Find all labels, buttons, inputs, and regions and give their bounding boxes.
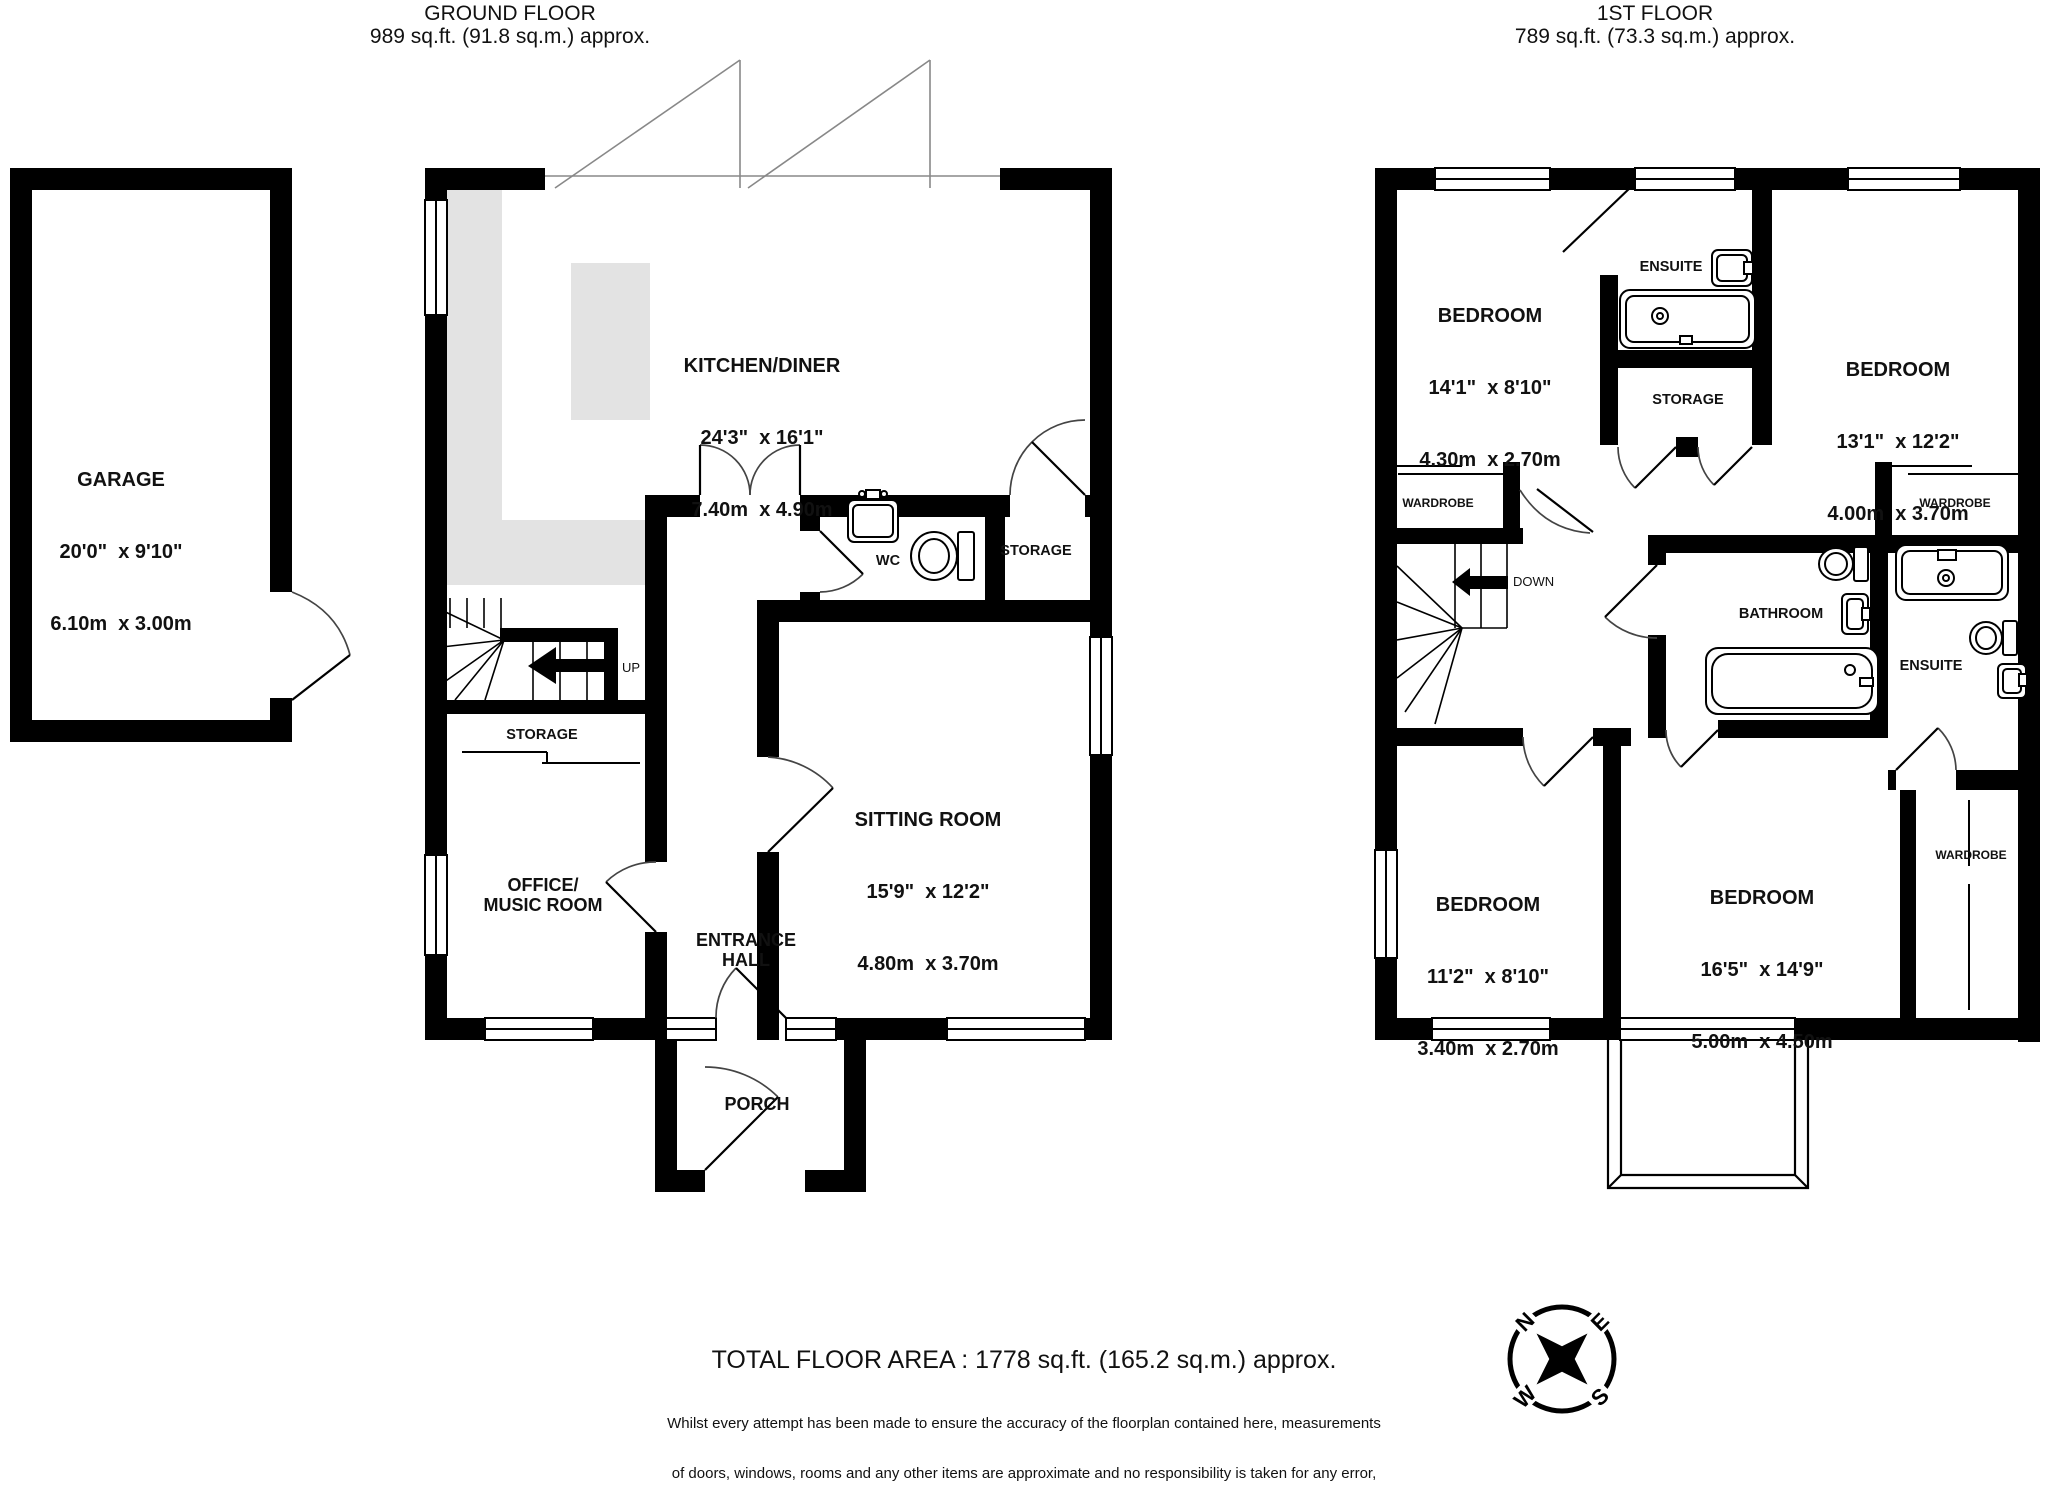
room-dims-metric: 4.30m x 2.70m bbox=[1419, 448, 1560, 472]
up-arrow-icon bbox=[528, 647, 612, 684]
wardrobe-1-label: WARDROBE bbox=[1402, 496, 1473, 510]
ensuite-2-label: ENSUITE bbox=[1900, 658, 1963, 674]
room-dims-imperial: 13'1" x 12'2" bbox=[1827, 430, 1968, 454]
floorplan-canvas: N E S W GROUND FLOOR989 sq.ft. (91.8 sq.… bbox=[0, 0, 2048, 1488]
stairs-down bbox=[1397, 544, 1507, 724]
ensuite-1-label: ENSUITE bbox=[1640, 259, 1703, 275]
compass-e: E bbox=[1586, 1308, 1614, 1336]
room-dims-imperial: 24'3" x 16'1" bbox=[684, 426, 841, 450]
room-dims-metric: 7.40m x 4.90m bbox=[684, 498, 841, 522]
wc-label: WC bbox=[876, 553, 900, 569]
first-floor-title: 1ST FLOOR789 sq.ft. (73.3 sq.m.) approx. bbox=[1515, 2, 1795, 48]
bath-icon bbox=[1706, 648, 1878, 714]
room-dims-metric: 5.00m x 4.50m bbox=[1691, 1030, 1832, 1054]
room-dims-metric: 6.10m x 3.00m bbox=[50, 612, 191, 636]
bedroom-3-label: BEDROOM 11'2" x 8'10" 3.40m x 2.70m bbox=[1417, 845, 1558, 1085]
room-name: BEDROOM bbox=[1419, 304, 1560, 328]
storage-ff-label: STORAGE bbox=[1652, 392, 1723, 408]
bedroom-1-label: BEDROOM 14'1" x 8'10" 4.30m x 2.70m bbox=[1419, 256, 1560, 496]
entrance-hall-label: ENTRANCE HALL bbox=[696, 930, 796, 970]
disclaimer-line: Whilst every attempt has been made to en… bbox=[663, 1416, 1385, 1433]
stairs-up bbox=[433, 598, 587, 700]
room-dims-metric: 3.40m x 2.70m bbox=[1417, 1037, 1558, 1061]
stairs-up-label: UP bbox=[622, 660, 640, 675]
bifold-door-marks bbox=[545, 60, 1000, 188]
garage-label: GARAGE 20'0" x 9'10" 6.10m x 3.00m bbox=[50, 420, 191, 660]
room-name: BEDROOM bbox=[1691, 886, 1832, 910]
floorplan-drawing: N E S W bbox=[0, 0, 2048, 1488]
bedroom-4-label: BEDROOM 16'5" x 14'9" 5.00m x 4.50m bbox=[1691, 838, 1832, 1078]
ground-floor-name: GROUND FLOOR bbox=[370, 2, 650, 25]
room-dims-imperial: 14'1" x 8'10" bbox=[1419, 376, 1560, 400]
ensuite1-sink-icon bbox=[1712, 250, 1753, 286]
ensuite2-toilet-icon bbox=[1970, 621, 2017, 655]
kitchen-counters bbox=[447, 190, 655, 585]
wardrobe-3-label: WARDROBE bbox=[1935, 848, 2006, 862]
ground-floor-title: GROUND FLOOR989 sq.ft. (91.8 sq.m.) appr… bbox=[370, 2, 650, 48]
compass-rose: N E S W bbox=[1471, 1268, 1654, 1451]
room-dims-imperial: 11'2" x 8'10" bbox=[1417, 965, 1558, 989]
first-floor-area: 789 sq.ft. (73.3 sq.m.) approx. bbox=[1515, 25, 1795, 48]
first-floor-name: 1ST FLOOR bbox=[1515, 2, 1795, 25]
sitting-room-label: SITTING ROOM 15'9" x 12'2" 4.80m x 3.70m bbox=[855, 760, 1002, 1000]
bedroom-2-label: BEDROOM 13'1" x 12'2" 4.00m x 3.70m bbox=[1827, 310, 1968, 550]
porch-label: PORCH bbox=[724, 1094, 789, 1114]
compass-w: W bbox=[1509, 1380, 1542, 1413]
bathroom-label: BATHROOM bbox=[1739, 606, 1823, 622]
disclaimer: Whilst every attempt has been made to en… bbox=[663, 1383, 1385, 1488]
room-name: GARAGE bbox=[50, 468, 191, 492]
room-dims-imperial: 20'0" x 9'10" bbox=[50, 540, 191, 564]
total-floor-area: TOTAL FLOOR AREA : 1778 sq.ft. (165.2 sq… bbox=[712, 1346, 1337, 1375]
room-dims-imperial: 16'5" x 14'9" bbox=[1691, 958, 1832, 982]
ensuite2-shower-icon bbox=[1896, 545, 2008, 600]
room-dims-imperial: 15'9" x 12'2" bbox=[855, 880, 1002, 904]
room-dims-metric: 4.80m x 3.70m bbox=[855, 952, 1002, 976]
compass-s: S bbox=[1586, 1383, 1614, 1411]
office-music-room-label: OFFICE/ MUSIC ROOM bbox=[484, 875, 603, 915]
ground-floor-area: 989 sq.ft. (91.8 sq.m.) approx. bbox=[370, 25, 650, 48]
kitchen-diner-label: KITCHEN/DINER 24'3" x 16'1" 7.40m x 4.90… bbox=[684, 306, 841, 546]
storage-understairs-label: STORAGE bbox=[506, 727, 577, 743]
down-arrow-icon bbox=[1452, 568, 1508, 596]
ensuite2-sink-icon bbox=[1998, 664, 2027, 698]
understairs-sliding-doors bbox=[462, 752, 640, 763]
wc-toilet-icon bbox=[911, 532, 974, 580]
room-name: SITTING ROOM bbox=[855, 808, 1002, 832]
wardrobe-2-label: WARDROBE bbox=[1919, 496, 1990, 510]
room-name: BEDROOM bbox=[1827, 358, 1968, 382]
room-name: KITCHEN/DINER bbox=[684, 354, 841, 378]
stairs-down-label: DOWN bbox=[1513, 574, 1554, 589]
room-name: BEDROOM bbox=[1417, 893, 1558, 917]
storage-gf-label: STORAGE bbox=[1000, 543, 1071, 559]
kitchen-island bbox=[571, 263, 650, 420]
bathroom-toilet-icon bbox=[1819, 547, 1868, 581]
disclaimer-line: of doors, windows, rooms and any other i… bbox=[663, 1466, 1385, 1483]
ensuite1-shower-icon bbox=[1620, 290, 1755, 348]
bathroom-sink-icon bbox=[1842, 594, 1870, 634]
